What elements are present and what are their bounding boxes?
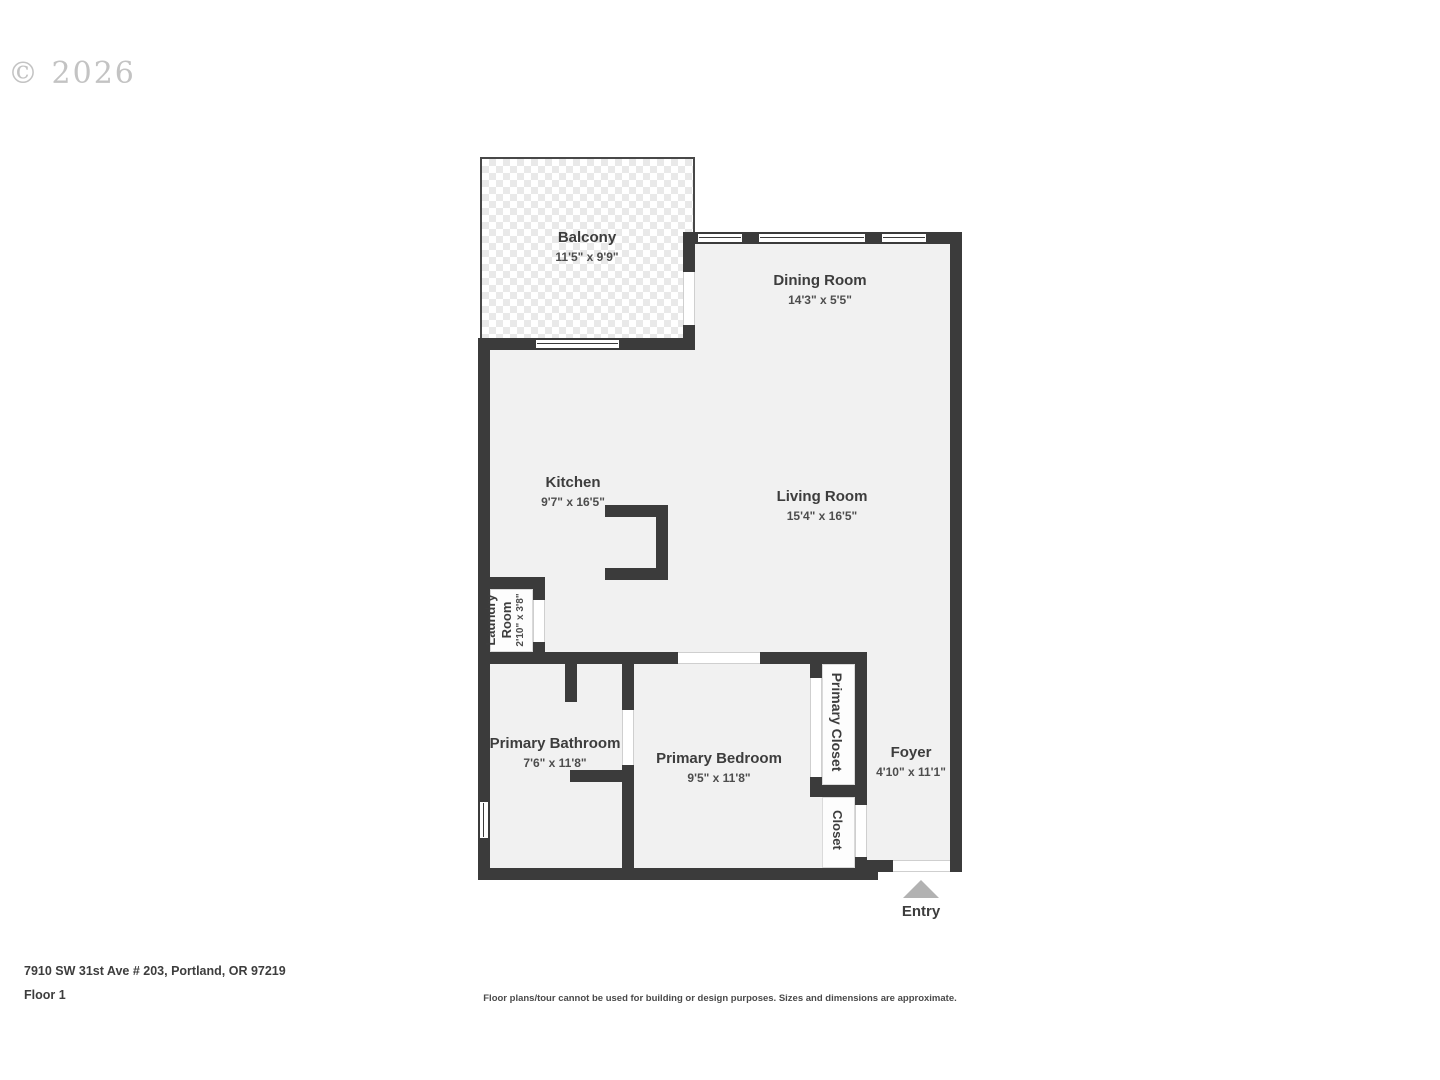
room-dims: 15'4" x 16'5": [747, 509, 897, 524]
room-name: Laundry Room: [483, 585, 514, 655]
wall-bathroom-stub-horizontal: [570, 770, 634, 782]
disclaimer-text: Floor plans/tour cannot be used for buil…: [0, 993, 1440, 1004]
door-opening-balcony: [683, 272, 695, 325]
room-label-bathroom: Primary Bathroom 7'6" x 11'8": [480, 735, 630, 771]
door-opening-entry: [893, 860, 950, 872]
address-text: 7910 SW 31st Ave # 203, Portland, OR 972…: [24, 964, 286, 978]
entry-label: Entry: [881, 903, 961, 920]
room-label-bedroom: Primary Bedroom 9'5" x 11'8": [644, 750, 794, 786]
room-label-closet: Closet: [829, 800, 845, 860]
room-dims: 14'3" x 5'5": [745, 293, 895, 308]
room-dims: 11'5" x 9'9": [512, 250, 662, 265]
wall-bottom-exterior: [478, 868, 878, 880]
room-dims: 2'10" x 3'8": [515, 585, 526, 655]
copyright-watermark: © 2026: [8, 56, 136, 91]
entry-arrow-icon: [903, 880, 939, 898]
room-name: Primary Bathroom: [480, 735, 630, 754]
room-label-living: Living Room 15'4" x 16'5": [747, 488, 897, 524]
door-opening-closet: [855, 805, 867, 857]
room-label-kitchen: Kitchen 9'7" x 16'5": [498, 474, 648, 510]
window: [479, 801, 489, 839]
balcony-sliding-door: [535, 339, 620, 349]
room-dims: 9'7" x 16'5": [498, 495, 648, 510]
room-label-laundry: Laundry Room 2'10" x 3'8": [483, 585, 539, 655]
floor-plan-page: © 2026 Balcony 11'5" x 9'9" Dining Ro: [0, 0, 1440, 1080]
room-name: Kitchen: [498, 474, 648, 493]
room-dims: 4'10" x 11'1": [836, 765, 986, 780]
wall-bathroom-stub-vertical: [565, 664, 577, 702]
room-name: Living Room: [747, 488, 897, 507]
room-label-dining: Dining Room 14'3" x 5'5": [745, 272, 895, 308]
door-opening-bedroom: [678, 652, 760, 664]
window: [697, 233, 743, 243]
room-label-foyer: Foyer 4'10" x 11'1": [836, 744, 986, 780]
room-label-balcony: Balcony 11'5" x 9'9": [512, 229, 662, 265]
room-name: Dining Room: [745, 272, 895, 291]
room-dims: 7'6" x 11'8": [480, 756, 630, 771]
window: [881, 233, 927, 243]
door-opening-primary-closet: [810, 678, 822, 777]
window: [758, 233, 866, 243]
wall-kitchen-peninsula-bottom: [605, 568, 668, 580]
room-name: Balcony: [512, 229, 662, 248]
room-name: Primary Bedroom: [644, 750, 794, 769]
room-name: Foyer: [836, 744, 986, 763]
room-label-primary-closet: Primary Closet: [829, 657, 845, 787]
room-dims: 9'5" x 11'8": [644, 771, 794, 786]
